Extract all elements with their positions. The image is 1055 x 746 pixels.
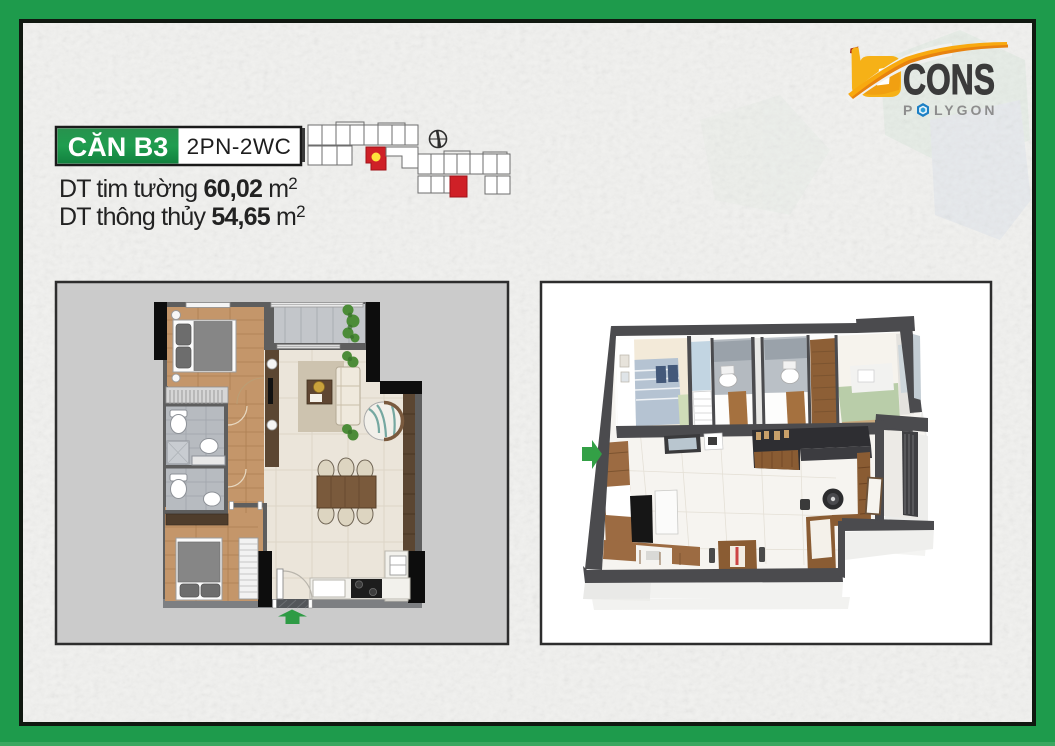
svg-text:DT thông thủy 54,65 m2: DT thông thủy 54,65 m2	[59, 202, 305, 231]
svg-text:2PN-2WC: 2PN-2WC	[187, 134, 292, 159]
svg-text:P: P	[903, 102, 912, 118]
svg-text:CĂN B3: CĂN B3	[68, 131, 169, 162]
svg-text:DT tim tường 60,02 m2: DT tim tường 60,02 m2	[59, 174, 297, 203]
svg-text:LYGON: LYGON	[934, 102, 998, 118]
svg-text:CONS: CONS	[903, 56, 995, 104]
